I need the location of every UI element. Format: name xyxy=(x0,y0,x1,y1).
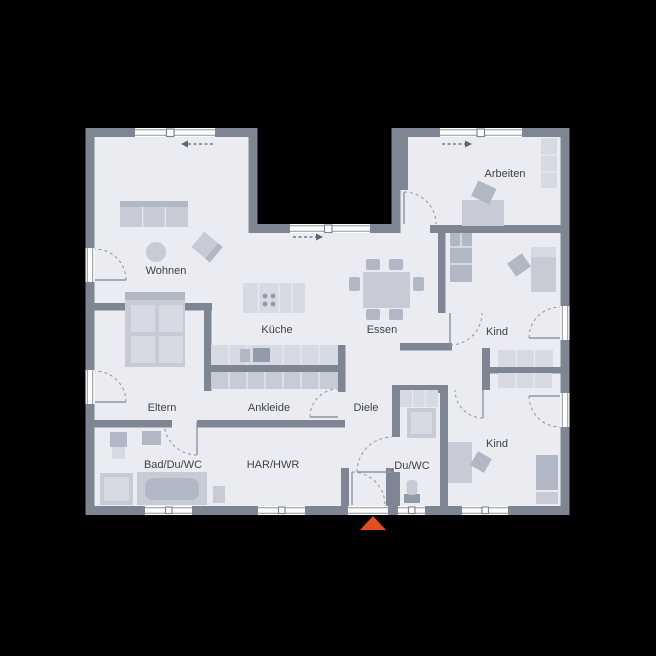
room-label-kind-2: Kind xyxy=(486,438,508,450)
hall-wardrobe-north xyxy=(498,350,553,367)
window-duwc xyxy=(398,506,425,515)
room-label-du-wc: Du/WC xyxy=(394,460,430,472)
sink xyxy=(110,432,127,459)
window-kind2 xyxy=(462,506,508,515)
room-label-har: HAR/HWR xyxy=(247,459,300,471)
sink-2 xyxy=(142,431,161,445)
double-bed xyxy=(125,292,185,367)
arbeiten-shelf xyxy=(541,138,557,188)
room-label-kind-1: Kind xyxy=(486,326,508,338)
room-label-essen: Essen xyxy=(367,324,398,336)
room-label-bad: Bad/Du/WC xyxy=(144,459,202,471)
window-top-left xyxy=(135,128,215,137)
shower-bad xyxy=(100,473,133,505)
shower-duwc xyxy=(407,408,436,438)
kind2-bed xyxy=(536,455,558,504)
room-label-eltern: Eltern xyxy=(148,402,177,414)
hall-wardrobe-south xyxy=(498,373,552,388)
window-har xyxy=(258,506,305,515)
bathtub xyxy=(137,472,207,505)
kitchen-counter xyxy=(211,345,338,365)
window-top-right xyxy=(440,128,522,137)
room-label-wohnen: Wohnen xyxy=(146,265,187,277)
room-label-arbeiten: Arbeiten xyxy=(485,168,526,180)
har-appliance xyxy=(213,486,225,503)
coffee-table xyxy=(146,242,166,262)
room-label-ankleide: Ankleide xyxy=(248,402,290,414)
kind1-wardrobe xyxy=(450,233,472,282)
ankleide-wardrobe xyxy=(211,372,338,389)
floor-plan: Wohnen Küche Essen Arbeiten Kind Eltern … xyxy=(0,0,656,656)
arbeiten-desk xyxy=(462,200,504,226)
window-bath xyxy=(145,506,192,515)
kind1-bed xyxy=(531,247,556,292)
window-notch xyxy=(290,224,370,233)
kitchen-island xyxy=(243,283,305,313)
room-label-diele: Diele xyxy=(353,402,378,414)
room-label-kueche: Küche xyxy=(261,324,292,336)
kind2-desk xyxy=(448,442,472,483)
sofa xyxy=(120,201,188,227)
duwc-closet xyxy=(400,390,438,407)
